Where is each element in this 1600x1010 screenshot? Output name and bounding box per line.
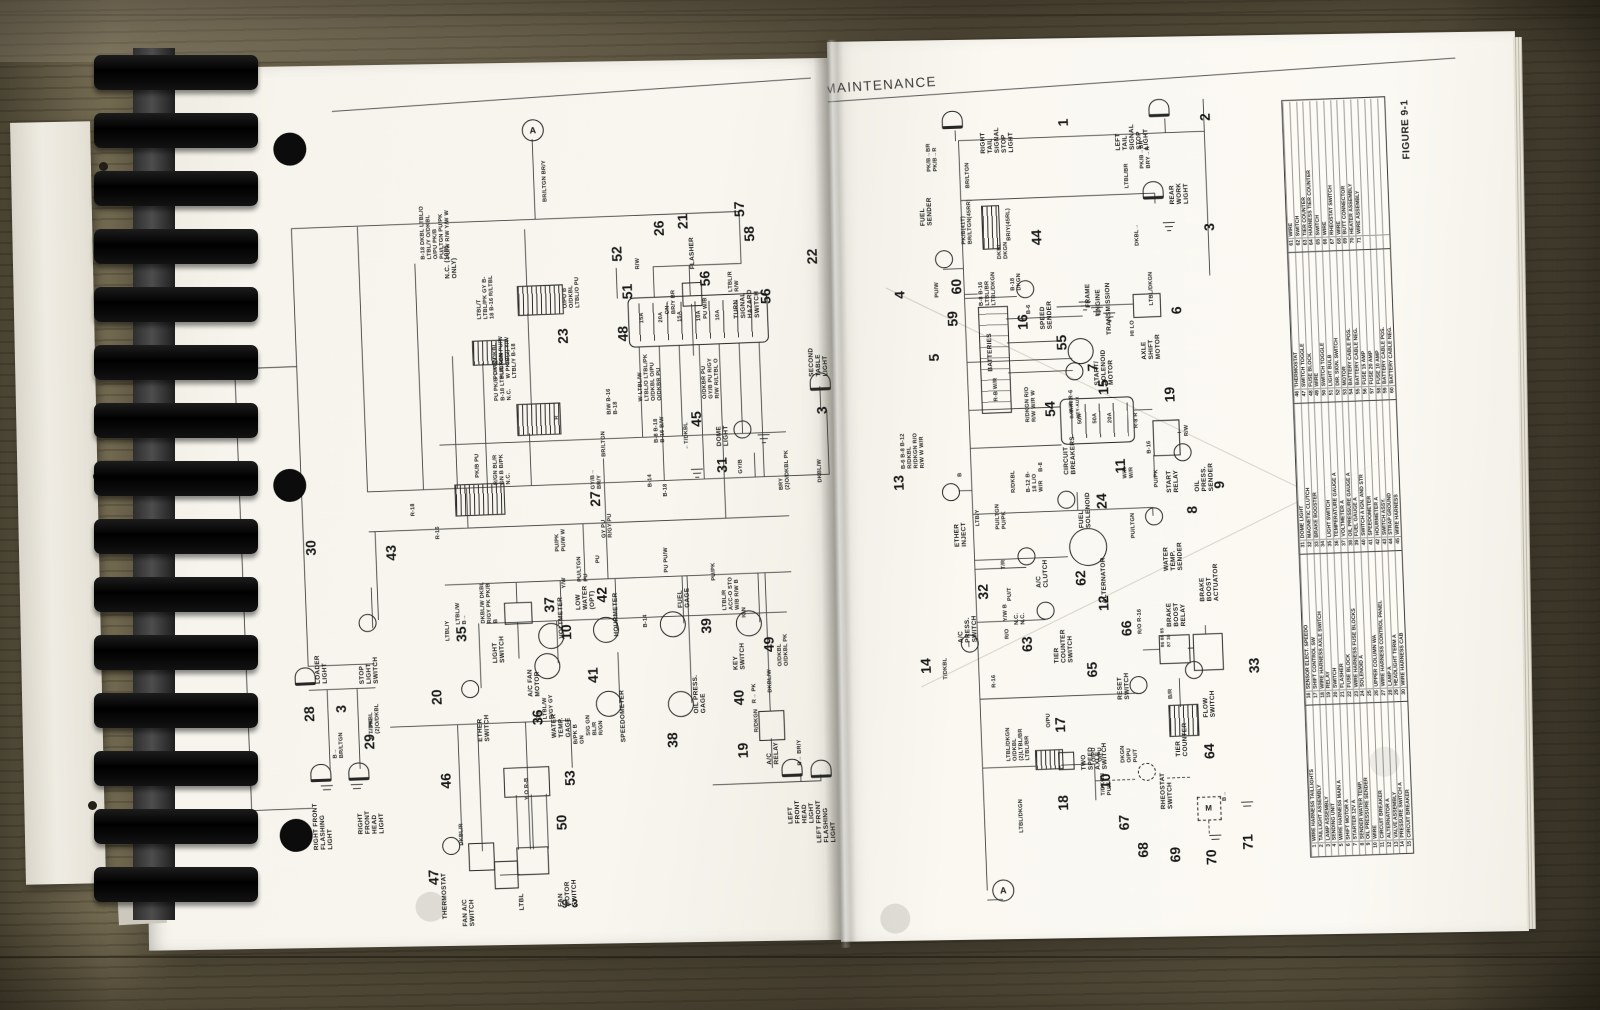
ac-press-switch-label: A/C PRESS. SWITCH xyxy=(956,606,978,643)
callout-45: 45 xyxy=(689,411,704,427)
wire-label: PU PU/W xyxy=(663,546,670,572)
wire-label: B-16 xyxy=(1146,435,1153,453)
callout-47: 47 xyxy=(426,869,441,885)
callout-26: 26 xyxy=(651,220,666,236)
callout-16: 16 xyxy=(1015,314,1030,330)
binding-tooth xyxy=(94,287,258,322)
wire-label: PU/W xyxy=(934,273,941,297)
callout-20: 20 xyxy=(429,689,444,705)
wire-label: W LTBL/W LTBL/O LTBL/PK O/DKBL O/PU O/DK… xyxy=(636,353,663,402)
wire-label: GY/B xyxy=(737,453,744,473)
callout-44: 44 xyxy=(1029,229,1044,245)
wire-label: PU xyxy=(595,549,602,563)
binding-tooth xyxy=(94,635,258,670)
callout-15: 15 xyxy=(1096,379,1111,395)
callout-35: 35 xyxy=(454,626,469,642)
wire-label: Y/W B xyxy=(1002,601,1009,621)
ac-fan-motor-label: A/C FAN MOTOR xyxy=(526,658,541,697)
wire-label: LTBL/DKGN O/DKBL (2)LTBL/BR LTBL/BR xyxy=(1004,710,1031,761)
wire-label: PK/B(41T) BR/LTGN(45RR) xyxy=(959,192,974,244)
wire-label: B xyxy=(957,465,964,477)
fuel-solenoid-label: FUEL SOLENOID xyxy=(1077,482,1093,529)
ltbl-box xyxy=(494,860,519,889)
flow-switch-label: FLOW SWITCH xyxy=(1201,681,1216,718)
callout-21: 21 xyxy=(675,213,690,229)
callout-62: 62 xyxy=(1073,570,1088,586)
motor-m-label: M xyxy=(1205,803,1212,812)
wire-label: B-6 xyxy=(1026,298,1033,314)
binding-tooth xyxy=(94,751,258,786)
callout-17: 17 xyxy=(1053,717,1068,733)
page-stack-edge xyxy=(10,121,106,885)
callout-13: 13 xyxy=(891,475,906,491)
fan-ac-switch-label: FAN A/C SWITCH xyxy=(461,886,477,927)
callout-57: 57 xyxy=(732,201,747,217)
wire-label: O/PU B O/DKBL LTBL/O PU xyxy=(561,264,582,309)
callout-14: 14 xyxy=(918,658,933,674)
right-front-flashing-lamp xyxy=(310,764,332,783)
harness-connector xyxy=(454,483,505,517)
callout-6: 6 xyxy=(1169,306,1183,314)
wire-label: T/R xyxy=(1000,553,1007,569)
tier-counter-label: TIER COUNTER xyxy=(1174,714,1190,757)
wire-label: T/DKBL (2)O/DKBL xyxy=(367,694,381,734)
wire-label: PU/LTGN xyxy=(1130,504,1138,538)
callout-67: 67 xyxy=(1116,815,1131,831)
ltbl-label: LTBL xyxy=(518,882,526,910)
wire-label: T/DKGN PU/T xyxy=(1100,767,1114,795)
callout-28: 28 xyxy=(302,706,317,722)
speed-sender-label: SPEED SENDER xyxy=(1038,291,1053,330)
wire-label: R/O xyxy=(1004,623,1011,639)
wire-label: DKBL→ xyxy=(1134,220,1141,246)
wire-label: PU PK/B DKGN B-18 LTBL/DKGN N.C. xyxy=(492,350,513,401)
tier-counter-switch-label: TIER COUNTER SWITCH xyxy=(1052,621,1075,664)
wire-label: BRY (2)O/DKBL PK xyxy=(777,450,791,490)
callout-18: 18 xyxy=(1056,795,1071,811)
callout-49: 49 xyxy=(761,636,776,652)
wire-label: LTBL/BR xyxy=(1123,152,1131,188)
binding-tooth xyxy=(94,171,258,206)
callout-39: 39 xyxy=(699,618,714,634)
callout-38: 38 xyxy=(665,732,680,748)
ether-inject-label: ETHER INJECT xyxy=(953,513,968,548)
wire-label: PK/B→BR PK/B→R xyxy=(925,139,939,171)
callout-42: 42 xyxy=(594,587,609,603)
callout-68: 68 xyxy=(1136,842,1151,858)
callout-60: 60 xyxy=(949,279,964,295)
wire-label: B-18 DKBL LTBL/O LTBL/Y O/DKBL O/PU PK/B… xyxy=(419,205,453,260)
wire-label: B-8 xyxy=(1038,454,1045,472)
callout-50: 50 xyxy=(554,814,569,830)
wire-label: B-6 B-8 B-12 R/DKBL R/DKGN R/O R/W W W/R xyxy=(900,428,927,469)
callout-5: 5 xyxy=(927,353,941,361)
wire-label: R→ PK xyxy=(751,679,758,703)
callout-59: 59 xyxy=(945,311,960,327)
wire-label: B-8 B-18 B-16 B/W xyxy=(653,414,667,442)
water-temp-sender-label: WATER TEMP. SENDER xyxy=(1162,534,1184,571)
wire-label: O/DKBR PU GY/B PU R/GY R/W R/LTBL O xyxy=(701,354,722,399)
callout-48: 48 xyxy=(615,326,630,342)
dome-light-label: DOME LIGHT xyxy=(715,414,730,447)
callout-53: 53 xyxy=(562,770,577,786)
callout-64: 64 xyxy=(1202,743,1217,759)
callout-58: 58 xyxy=(742,226,757,242)
wire-label: PK/B→BR BRY→R xyxy=(1138,136,1152,168)
wire-label: B→ BR/LTGN xyxy=(331,724,345,758)
wire-label: PU/LTGN PU/PK xyxy=(994,493,1008,529)
wire-label: DKBL DKGN xyxy=(996,233,1010,259)
shift-control-box xyxy=(1058,752,1075,771)
callout-31: 31 xyxy=(714,457,729,473)
oil-press-gage-label: OIL PRESS. GAGE xyxy=(692,673,708,714)
light-switch-box xyxy=(504,602,533,625)
wire-label: PU/PK xyxy=(710,557,717,581)
callout-41: 41 xyxy=(585,667,600,683)
wire-label: LTBL/R R/W xyxy=(727,261,741,291)
start-relay-label: START RELAY xyxy=(1165,460,1180,493)
wire-label: N.C. N.C. xyxy=(1013,602,1026,624)
fuel-sender-label: FUEL SENDER xyxy=(918,186,934,227)
binding-tooth xyxy=(94,461,258,496)
callout-56b: 56 xyxy=(758,288,773,304)
callout-2: 2 xyxy=(1198,113,1212,121)
binding-tooth xyxy=(94,403,258,438)
right-page-content: MAINTENANCE xyxy=(827,31,1529,942)
wire-label: GY/B→ BR/Y xyxy=(589,457,603,489)
wire-label: GY LTBL/W R/GY GY xyxy=(535,693,555,720)
callout-32: 32 xyxy=(976,584,991,600)
wire-label: B-18 xyxy=(662,474,669,496)
callout-12: 12 xyxy=(1096,595,1111,611)
wire-label: R-8 R xyxy=(1133,410,1140,428)
rear-work-light-label: REAR WORK LIGHT xyxy=(1168,176,1190,205)
callout-63: 63 xyxy=(1020,636,1035,652)
callout-55: 55 xyxy=(1054,335,1069,351)
callout-43: 43 xyxy=(384,545,399,561)
photo-of-open-manual: A xyxy=(0,0,1600,1010)
wire-label: B→ BR/Y xyxy=(796,737,803,765)
callout-65: 65 xyxy=(1085,662,1100,678)
callout-8: 8 xyxy=(1185,506,1199,514)
brake-boost-actuator-label: BRAKE BOOST ACTUATOR xyxy=(1198,553,1221,602)
frame-ground-label: FRAME xyxy=(1084,274,1092,308)
wire-label: R-16 xyxy=(435,517,442,539)
binding-tooth xyxy=(94,867,258,902)
wire-label: LTB/Y xyxy=(974,502,981,526)
callout-33: 33 xyxy=(1247,657,1262,673)
loader-light-lamp xyxy=(294,667,316,686)
wire-label: B→ xyxy=(1221,785,1228,801)
wire-label: B-14 xyxy=(647,465,654,487)
wire-label: PU/LTGN PU xyxy=(576,547,590,581)
callout-3-loader: 3 xyxy=(334,705,348,713)
axle-shift-motor-box xyxy=(1133,293,1162,318)
wire-label: W/R W/R xyxy=(1122,454,1136,478)
callout-1: 1 xyxy=(1056,118,1070,126)
callout-23: 23 xyxy=(555,328,570,344)
callout-40: 40 xyxy=(731,690,746,706)
wire-label: O/DKBL O/DKBL PK xyxy=(776,632,790,666)
callout-7: 7 xyxy=(1085,363,1099,371)
brake-boost-relay-label: BRAKE BOOST RELAY xyxy=(1165,592,1187,627)
breaker-aux-labels: BAT-AUX KEY-AUX xyxy=(1068,392,1082,418)
page-number: 9-3 xyxy=(561,898,578,911)
legend-group-16-30: 16SENSOR ELECT. SPEEDO17SHIFT CONTROL SW… xyxy=(1300,551,1408,706)
wire-label: R/W xyxy=(634,249,641,269)
wire-label: LTBL/Y xyxy=(444,615,451,641)
binding-tooth xyxy=(94,229,258,264)
callout-19: 19 xyxy=(735,742,750,758)
wire-label: PU/PK PU/W W xyxy=(554,523,568,551)
right-front-head-lamp xyxy=(348,762,370,781)
callout-19: 19 xyxy=(1162,386,1177,402)
loader-light-label: LOADER LIGHT xyxy=(313,646,328,685)
wire-label: LTBL/T LTBL/PK GY B-18 B-16 R/LTBL xyxy=(475,273,496,320)
wire-label: LTBL/W B→ xyxy=(455,596,469,624)
callout-54: 54 xyxy=(1043,401,1058,417)
hi-lo-label: HI LO xyxy=(1130,320,1137,336)
relay-terminal-labels: 86 88 85 87 30 xyxy=(1159,627,1172,647)
wire-label: DKBL/R xyxy=(458,817,465,845)
callout-30: 30 xyxy=(303,540,318,556)
wire-label: O/PU xyxy=(1045,707,1052,727)
fuse-amp-labels: 15A 20A 15A 10A 10A xyxy=(632,298,728,324)
rheostat-switch-label: RHEOSTAT SWITCH xyxy=(1159,763,1175,810)
wire-label: R-B W/R xyxy=(993,375,1000,401)
fan-motor-switch-box xyxy=(516,846,549,875)
wire-label: R/W xyxy=(1183,420,1190,436)
callout-51: 51 xyxy=(620,284,635,300)
axle-shift-motor-label: AXLE SHIFT MOTOR xyxy=(1140,325,1162,360)
manual-right-page[interactable]: MAINTENANCE xyxy=(827,31,1529,942)
binding-tooth xyxy=(94,113,258,148)
right-tail-light-label: RIGHT TAIL SIGNAL STOP LIGHT xyxy=(979,119,1015,154)
wire-label: PK/B PU xyxy=(474,452,481,478)
key-switch-label: KEY SWITCH xyxy=(731,632,746,671)
callout-9: 9 xyxy=(1212,481,1226,489)
binding-tooth xyxy=(94,345,258,380)
binding-tooth xyxy=(94,809,258,844)
wire-label: Y O R-B xyxy=(524,776,531,800)
wire-label: IGN xyxy=(741,601,748,617)
ether-switch-label: ETHER SWITCH xyxy=(476,703,491,742)
right-tail-lamp xyxy=(941,110,963,129)
wire-label: R/O R-16 xyxy=(1136,606,1143,634)
wire-label: B-8 B-16 LTBL/BR LTBL/DKGN xyxy=(977,261,998,306)
punch-hole xyxy=(99,162,108,171)
ac-relay-label: A/C RELAY xyxy=(765,728,780,765)
wire-label: R/DKBL xyxy=(1010,463,1017,493)
wire-label: R-16 xyxy=(991,668,998,688)
stop-light-switch-label: STOP LIGHT SWITCH xyxy=(357,646,379,685)
wire-label: R-18 xyxy=(410,494,417,516)
callout-70: 70 xyxy=(1204,849,1219,865)
callout-56a: 56 xyxy=(697,271,712,287)
wire-label: DKGN O/PU PU/T xyxy=(1119,734,1139,763)
legend-group-61-71: 61WIRE62SWITCH63TIER COUNTER64HARNESS TI… xyxy=(1282,98,1390,253)
legend-group-46-60: 46THERMOSTAT47SWITCH TOGGLE48FUSE BLOCK4… xyxy=(1288,249,1396,404)
callout-66: 66 xyxy=(1119,620,1134,636)
callout-3: 3 xyxy=(1202,223,1216,231)
wire-label: ←T/DKBL xyxy=(683,416,691,450)
ac-clutch-label: A/C CLUTCH xyxy=(1034,549,1049,588)
wire-label: B-18 DKGN xyxy=(1009,264,1023,290)
wire-label: R/GN BL/R GN B B/PK N.C. xyxy=(492,448,512,485)
wire-label: B/R xyxy=(1167,683,1174,699)
punch-hole xyxy=(88,801,97,810)
circuit-breakers-label: CIRCUIT BREAKERS xyxy=(1062,428,1078,475)
callout-71: 71 xyxy=(1240,834,1255,850)
reset-switch-label: RESET SWITCH xyxy=(1116,663,1131,700)
callout-37: 37 xyxy=(542,597,557,613)
wire-label: PU/PK xyxy=(1153,463,1160,487)
wire-label: B/W B-16 B-18 xyxy=(606,386,620,414)
binding-tooth xyxy=(94,55,258,90)
callout-52: 52 xyxy=(609,246,624,262)
wire-label: PU/T xyxy=(1007,583,1014,601)
wire-label: B/PK B GN xyxy=(573,722,586,744)
fuel-gage-label: FUEL GAGE xyxy=(676,574,691,609)
wire-label: DKBL/W DKBL R/GY PK PK/B B xyxy=(479,581,499,624)
callout-4: 4 xyxy=(892,291,906,299)
callout-10: 10 xyxy=(559,624,574,640)
fan-ac-switch-box xyxy=(468,842,495,871)
binding-tooth xyxy=(94,577,258,612)
legend-group-1-15: 1WIRE HARNESS TAILLIGHTS2TAILLIGHT ASSEM… xyxy=(1305,702,1413,857)
wire-label: T/DKBL xyxy=(942,651,949,679)
right-front-head-light-label: RIGHT FRONT HEAD LIGHT xyxy=(356,800,385,835)
legend-group-31-45: 31DOME LIGHT32MAGNETIC CLUTCH33BRAKE BOO… xyxy=(1294,400,1402,555)
right-front-flashing-light-label: RIGHT FRONT FLASHING LIGHT xyxy=(311,800,334,851)
wire-label: R xyxy=(553,405,560,419)
wire-label: LTBL/R ACC-O STO W/B R/W B xyxy=(721,574,741,611)
fuse-harness-connector xyxy=(517,284,564,316)
light-switch-label: LIGHT SWITCH xyxy=(491,625,506,664)
engine-ground-label: ENGINE xyxy=(1094,279,1102,315)
callout-69: 69 xyxy=(1168,847,1183,863)
callout-46: 46 xyxy=(438,773,453,789)
wire-label: B-14 xyxy=(642,605,649,627)
callout-27: 27 xyxy=(588,491,603,507)
rear-work-lamp xyxy=(1142,181,1164,200)
callout-24: 24 xyxy=(1094,493,1109,509)
wire-label: SIG GN BL/R R/GN xyxy=(585,707,605,736)
binding-tooth xyxy=(94,693,258,728)
wire-label: DKBL/W xyxy=(766,657,774,693)
open-manual-book: A xyxy=(121,29,1531,959)
left-front-head-light-label: LEFT FRONT HEAD LIGHT xyxy=(786,789,815,824)
binding-tooth xyxy=(94,519,258,554)
left-tail-lamp xyxy=(1148,99,1170,118)
wire-label: GY PU R/GY PU xyxy=(600,512,614,538)
wire-label: Y/W xyxy=(561,570,568,588)
wire-label: R/DKGN R/O R/W W/R W xyxy=(1024,386,1038,422)
wire-label: O/PU O/PU xyxy=(1091,738,1105,762)
